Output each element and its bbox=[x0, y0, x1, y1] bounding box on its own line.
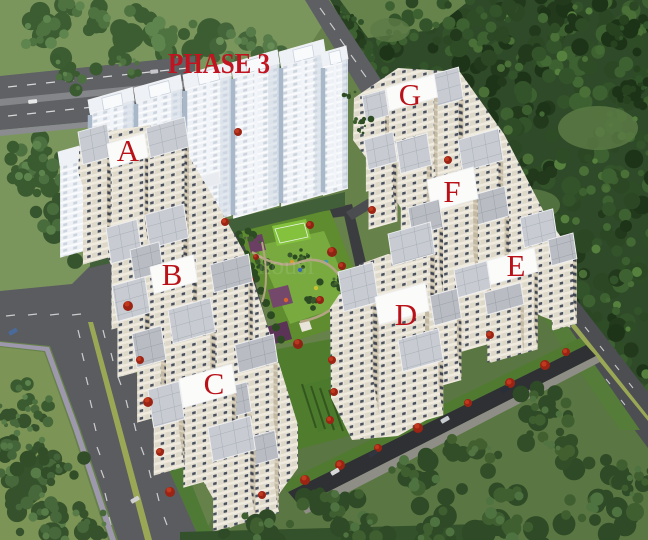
svg-text:A: A bbox=[117, 133, 140, 168]
svg-text:G: G bbox=[399, 77, 421, 112]
svg-text:C: C bbox=[204, 366, 225, 401]
svg-text:B: B bbox=[162, 257, 183, 292]
svg-text:D: D bbox=[395, 297, 417, 332]
svg-text:housi: housi bbox=[258, 251, 314, 280]
svg-text:F: F bbox=[443, 174, 460, 209]
svg-text:PHASE 3: PHASE 3 bbox=[168, 49, 270, 80]
svg-text:E: E bbox=[507, 248, 526, 283]
